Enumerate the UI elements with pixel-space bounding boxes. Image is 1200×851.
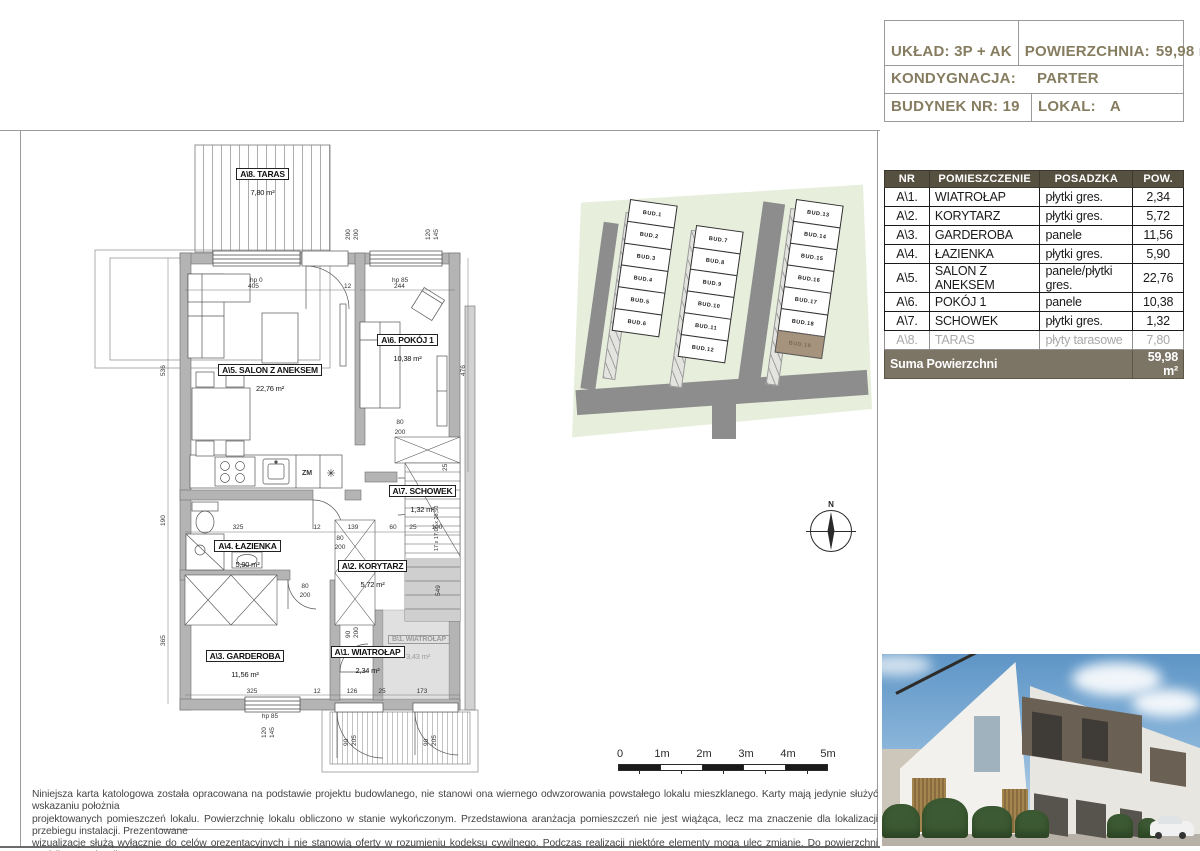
wardrobe-icon — [437, 356, 447, 426]
svg-text:145: 145 — [269, 727, 276, 738]
catalog-card-page: { "header": { "uklad_label": "UKŁAD:", "… — [0, 0, 1200, 851]
svg-text:25: 25 — [409, 524, 417, 531]
building-photo — [882, 654, 1200, 846]
table-row: A\2.KORYTARZpłytki gres.5,72 — [885, 207, 1184, 226]
col-header-posadzka: POSADZKA — [1040, 171, 1133, 188]
disclaimer-line-2: projektowanych pomieszczeń lokalu. Powie… — [32, 814, 878, 839]
svg-text:200: 200 — [353, 627, 360, 638]
svg-text:120: 120 — [425, 229, 432, 240]
room-label-korytarz: A\2. KORYTARZ 5,72 m² — [320, 556, 425, 592]
svg-text:549: 549 — [435, 585, 442, 596]
svg-text:90: 90 — [345, 630, 352, 638]
svg-text:205: 205 — [351, 735, 358, 746]
room-label-salon: A\5. SALON Z ANEKSEM 22,76 m² — [195, 360, 345, 396]
scale-label: 4m — [780, 748, 795, 760]
sofa-icon — [188, 274, 250, 358]
photo-window — [1082, 718, 1108, 762]
svg-text:80: 80 — [336, 535, 344, 542]
scale-label: 1m — [654, 748, 669, 760]
garderoba-window — [245, 697, 300, 712]
compass-circle — [810, 510, 852, 552]
svg-text:25: 25 — [442, 463, 449, 471]
room-label-taras: A\8. TARAS 7,80 m² — [210, 164, 315, 200]
staircase — [395, 437, 460, 621]
svg-text:90: 90 — [423, 738, 430, 746]
lokal-label: LOKAL: — [1038, 98, 1096, 115]
photo-upper-window-band-2 — [1150, 747, 1186, 787]
scale-bar-segments — [618, 764, 828, 771]
col-header-pomieszczenie: POMIESZCZENIE — [929, 171, 1040, 188]
header-row-3: BUDYNEK NR: 19 LOKAL:A — [885, 93, 1183, 121]
stove-icon — [215, 457, 255, 486]
svg-text:200: 200 — [345, 229, 352, 240]
fridge-icon: ✳ — [326, 468, 335, 480]
svg-text:hp 85: hp 85 — [262, 713, 279, 720]
svg-text:120: 120 — [261, 727, 268, 738]
floor-plan: hp 0 405 12 hp 85 244 200 200 120 145 53… — [10, 126, 488, 806]
balcony-door — [302, 251, 349, 309]
svg-text:405: 405 — [248, 283, 259, 290]
svg-text:476: 476 — [460, 365, 467, 376]
scale-label: 0 — [617, 748, 623, 760]
table-row-taras: A\8.TARASpłyty tarasowe7,80 — [885, 331, 1184, 350]
photo-hedge — [922, 798, 968, 838]
scale-bar: 0 1m 2m 3m 4m 5m — [618, 748, 830, 778]
cloud — [1132, 689, 1200, 717]
svg-text:200: 200 — [300, 592, 311, 599]
table-row: A\6.POKÓJ 1panele10,38 — [885, 293, 1184, 312]
disclaimer-line-1: Niniejsza karta katologowa została oprac… — [32, 789, 878, 814]
uklad-label: UKŁAD: — [891, 43, 950, 60]
svg-text:145: 145 — [433, 229, 440, 240]
photo-window — [1032, 712, 1062, 761]
table-sum-row: Suma Powierzchni59,98 m² — [885, 350, 1184, 379]
compass-north-label: N — [806, 500, 856, 509]
north-compass: N — [806, 500, 856, 552]
kondygnacja-value: PARTER — [1031, 67, 1105, 92]
kondygnacja-label: KONDYGNACJA: — [885, 67, 1031, 92]
table-row: A\3.GARDEROBApanele11,56 — [885, 226, 1184, 245]
svg-text:139: 139 — [348, 524, 359, 531]
kitchen-counter — [190, 455, 342, 488]
pokoj-window — [370, 251, 442, 266]
uklad-value: 3P + AK — [954, 43, 1012, 60]
tv-icon — [340, 304, 346, 366]
table-row: A\1.WIATROŁAPpłytki gres.2,34 — [885, 188, 1184, 207]
room-label-garderoba: A\3. GARDEROBA 11,56 m² — [185, 646, 305, 682]
salon-window — [213, 251, 300, 266]
svg-text:200: 200 — [395, 429, 406, 436]
site-road-stub — [712, 397, 736, 439]
svg-text:12: 12 — [313, 524, 321, 531]
budynek-value: 19 — [1003, 98, 1020, 115]
col-header-pow: POW. — [1133, 171, 1184, 188]
photo-car — [1150, 821, 1194, 836]
table-row: A\4.ŁAZIENKApłytki gres.5,90 — [885, 245, 1184, 264]
frame-right-line — [877, 130, 878, 847]
svg-text:173: 173 — [417, 688, 428, 695]
rooms-table-header-row: NR POMIESZCZENIE POSADZKA POW. — [885, 171, 1184, 188]
photo-window — [974, 716, 1000, 772]
coffee-table-icon — [262, 313, 298, 363]
svg-text:12: 12 — [313, 688, 321, 695]
svg-text:244: 244 — [394, 283, 405, 290]
svg-text:205: 205 — [431, 735, 438, 746]
cloud — [882, 654, 932, 676]
svg-text:90: 90 — [343, 738, 350, 746]
svg-text:325: 325 — [247, 688, 258, 695]
room-label-lazienka: A\4. ŁAZIENKA 5,90 m² — [195, 536, 300, 572]
rooms-table: NR POMIESZCZENIE POSADZKA POW. A\1.WIATR… — [884, 170, 1184, 379]
entrance-porch — [322, 703, 478, 772]
lokal-value: A — [1110, 98, 1121, 115]
header-row-1: UKŁAD: 3P + AK POWIERZCHNIA:59,98 m² — [885, 21, 1183, 65]
chair-icon — [411, 287, 444, 320]
photo-garage-door — [1076, 800, 1106, 839]
col-header-nr: NR — [885, 171, 930, 188]
site-plan: BUD.1 BUD.2 BUD.3 BUD.4 BUD.5 BUD.6 BUD.… — [572, 182, 872, 440]
room-label-schowek: A\7. SCHOWEK 1,32 m² — [380, 481, 465, 517]
budynek-label: BUDYNEK NR: — [891, 98, 998, 115]
scale-label: 2m — [696, 748, 711, 760]
room-label-wiatrolap-b: B\1. WIATROŁAP 3,43 m² — [388, 628, 448, 664]
svg-text:325: 325 — [233, 524, 244, 531]
svg-text:365: 365 — [160, 635, 167, 646]
powierzchnia-label: POWIERZCHNIA: — [1025, 43, 1150, 60]
powierzchnia-value: 59,98 m² — [1156, 43, 1200, 60]
svg-text:190: 190 — [160, 515, 167, 526]
svg-text:200: 200 — [335, 544, 346, 551]
svg-text:80: 80 — [301, 583, 309, 590]
disclaimer-line-3: wizualizacje służą wyłącznie do celów or… — [32, 838, 878, 851]
room-label-pokoj: A\6. POKÓJ 1 10,38 m² — [365, 330, 450, 366]
toilet-icon — [192, 502, 218, 533]
svg-text:126: 126 — [347, 688, 358, 695]
photo-hedge — [882, 804, 920, 838]
svg-text:80: 80 — [396, 419, 404, 426]
sum-value: 59,98 m² — [1133, 350, 1184, 379]
floor-plan-drawing: hp 0 405 12 hp 85 244 200 200 120 145 53… — [10, 126, 488, 806]
photo-hedge — [972, 806, 1012, 838]
svg-text:25: 25 — [378, 688, 386, 695]
table-row: A\7.SCHOWEKpłytki gres.1,32 — [885, 312, 1184, 331]
disclaimer-text: Niniejsza karta katologowa została oprac… — [32, 789, 878, 851]
unit-header-box: UKŁAD: 3P + AK POWIERZCHNIA:59,98 m² KON… — [884, 20, 1184, 122]
svg-text:536: 536 — [160, 365, 167, 376]
scale-label: 3m — [738, 748, 753, 760]
photo-hedge — [1107, 814, 1133, 838]
svg-text:12: 12 — [344, 283, 352, 290]
svg-text:60: 60 — [389, 524, 397, 531]
dishwasher-label: ZM — [302, 470, 312, 477]
photo-hedge — [1015, 810, 1049, 838]
table-row: A\5.SALON Z ANEKSEMpanele/płytki gres.22… — [885, 264, 1184, 293]
header-row-2: KONDYGNACJA: PARTER — [885, 65, 1183, 93]
sum-label: Suma Powierzchni — [885, 350, 1133, 379]
scale-label: 5m — [820, 748, 835, 760]
svg-text:200: 200 — [353, 229, 360, 240]
compass-needle-icon — [811, 511, 851, 551]
